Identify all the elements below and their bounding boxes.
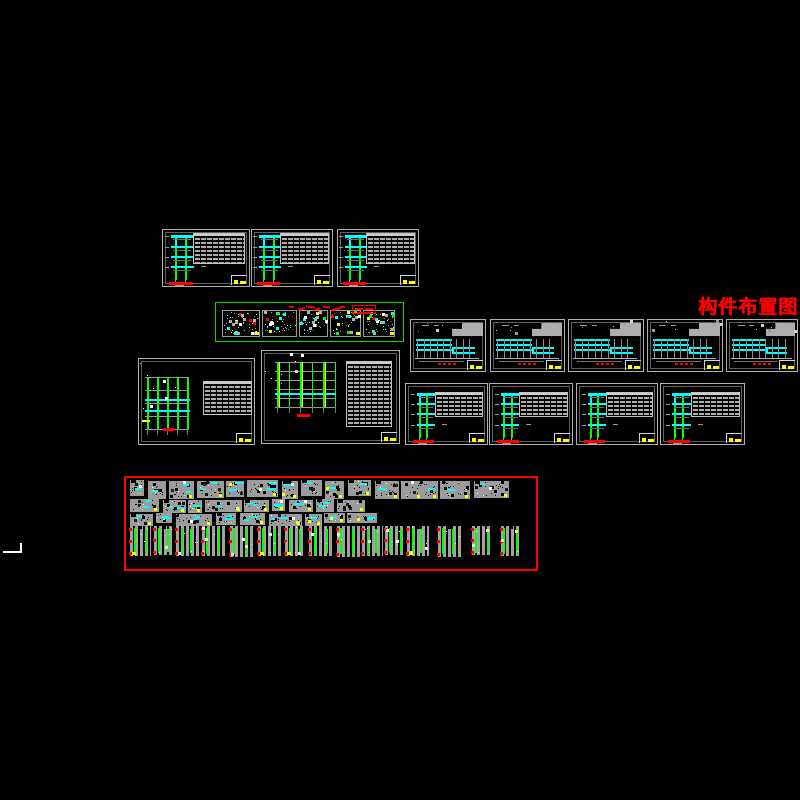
- roof-step-region: [610, 323, 641, 337]
- annotation-specks: [491, 320, 492, 321]
- column-grid-line: [497, 339, 498, 359]
- beam-grid-line: [732, 349, 766, 351]
- column-detail-strip: [154, 526, 174, 555]
- sheet-title-block: [554, 433, 570, 443]
- title-block-stamp: [472, 438, 476, 442]
- yellow-stamp: [366, 492, 369, 495]
- beam-shadow-line: [347, 270, 364, 271]
- frame-elevation-sheet-top-1: [162, 229, 250, 287]
- annotation-dash: [580, 325, 587, 326]
- beam-highlight-dash: [447, 489, 455, 491]
- title-block-stamp: [476, 366, 482, 369]
- rebar-line-green: [352, 529, 354, 554]
- red-script-stroke: [289, 306, 294, 308]
- strip-bright-marks: [407, 526, 408, 527]
- column-grid-line: [733, 339, 734, 359]
- column-line: [359, 235, 361, 280]
- panel-bright-marks: [205, 500, 206, 501]
- dimension-tick: [666, 404, 670, 405]
- column-grid-line: [456, 339, 457, 359]
- yellow-grid-line: [302, 362, 303, 407]
- fabrication-detail-panel: [301, 480, 322, 496]
- beam-shadow-line: [419, 428, 434, 429]
- column-detail-strip: [202, 526, 226, 556]
- rebar-line-green: [452, 529, 454, 554]
- dimension-tick: [165, 236, 169, 237]
- rebar-line-green: [181, 528, 183, 554]
- fabrication-detail-panel: [130, 514, 153, 526]
- floor-beam-line: [501, 403, 519, 405]
- sheet-title-block: [231, 275, 247, 285]
- annotation-specks: [727, 320, 728, 321]
- column-grid-line: [601, 339, 602, 359]
- strip-bright-marks: [362, 526, 363, 527]
- grid-tick: [157, 429, 158, 435]
- floor-beam-line: [171, 246, 194, 248]
- column-grid-line: [759, 339, 760, 359]
- title-block-stamp: [557, 438, 561, 442]
- yellow-stamp: [356, 332, 360, 335]
- panel-bright-marks: [130, 499, 131, 500]
- beam-highlight-dash: [146, 500, 150, 502]
- column-grid-line: [530, 339, 531, 359]
- ground-line: [577, 361, 623, 362]
- panel-notch: [349, 480, 354, 483]
- strip-bright-marks: [285, 526, 286, 527]
- beam-shadow-line: [590, 397, 604, 398]
- column-line: [682, 393, 684, 438]
- fabrication-detail-panel: [282, 481, 298, 499]
- annotation-dash: [418, 443, 427, 444]
- stepped-elevation-sheet-1: [410, 319, 486, 372]
- sheet-title-block: [546, 360, 562, 370]
- ground-line: [734, 361, 777, 362]
- yellow-stamp: [293, 495, 296, 498]
- floor-beam-line: [345, 246, 366, 248]
- beam-highlight-dash: [135, 515, 142, 517]
- rebar-schedule-table: [435, 392, 483, 417]
- panel-notch: [245, 500, 250, 503]
- column-grid-line: [765, 339, 766, 359]
- column-grid-line: [661, 339, 662, 359]
- rebar-line-green: [167, 529, 169, 552]
- beam-highlight-dash: [200, 488, 206, 490]
- fabrication-detail-panel: [316, 499, 334, 512]
- drawing-caption-red: [518, 363, 538, 366]
- beam-grid-line: [653, 339, 689, 341]
- beam-shadow-line: [261, 239, 278, 240]
- grid-tick: [323, 407, 324, 413]
- beam-shadow-line: [674, 397, 689, 398]
- annotation-dash: [502, 325, 509, 326]
- beam-grid-line: [496, 349, 531, 351]
- fabrication-detail-panel: [269, 514, 302, 526]
- yellow-stamp: [260, 521, 263, 524]
- dimension-tick: [253, 257, 257, 258]
- beam-shadow-line: [674, 428, 689, 429]
- beam-highlight-dash: [309, 517, 317, 519]
- dimension-tick: [339, 267, 343, 268]
- sheet-title-block: [625, 360, 641, 370]
- beam-grid-step: [610, 347, 612, 352]
- red-script-stroke: [323, 305, 330, 308]
- floor-beam-line: [672, 413, 691, 415]
- yellow-stamp: [340, 519, 343, 522]
- column-grid-line: [654, 339, 655, 359]
- column-detail-strip: [230, 526, 255, 557]
- detail-panel: [363, 310, 395, 337]
- rebar-schedule-table: [691, 392, 740, 417]
- yellow-stamp: [255, 332, 259, 335]
- yellow-stamp: [317, 522, 320, 525]
- grid-horizontal: [275, 371, 335, 372]
- rebar-line-green: [218, 529, 220, 553]
- beam-highlight-dash: [244, 519, 249, 521]
- yellow-grid-line: [279, 362, 280, 407]
- fabrication-detail-panel: [347, 513, 377, 523]
- beam-highlight-dash: [269, 482, 277, 484]
- title-block-stamp: [470, 365, 474, 369]
- red-boxed-label: [352, 305, 376, 314]
- sheet-title-block: [704, 360, 720, 370]
- title-block-stamp: [563, 439, 569, 442]
- floor-beam-line: [417, 413, 435, 415]
- panel-notch: [302, 480, 307, 483]
- beam-grid-line: [653, 349, 689, 351]
- beam-shadow-line: [173, 270, 191, 271]
- column-line: [185, 235, 187, 280]
- beam-grid-line: [732, 339, 766, 341]
- strip-bright-marks: [438, 526, 439, 527]
- column-grid-line: [674, 339, 675, 359]
- floor-beam-line: [417, 403, 435, 405]
- rebar-line-green: [400, 529, 402, 552]
- column-detail-strip: [385, 526, 405, 555]
- beam-highlight-dash: [271, 518, 275, 520]
- drawing-caption-red: [675, 363, 695, 366]
- detail-panel: [299, 310, 328, 337]
- beam-grid-line: [574, 344, 610, 346]
- sheet-title-block: [400, 275, 416, 285]
- dimension-tick: [698, 424, 703, 425]
- rebar-line-green: [412, 528, 414, 554]
- fabrication-detail-panel: [272, 499, 285, 511]
- panel-bright-marks: [197, 481, 198, 482]
- beam-shadow-line: [347, 250, 364, 251]
- dimension-tick: [495, 425, 499, 426]
- beam-shadow-line: [173, 250, 191, 251]
- annotation-dash: [434, 325, 439, 326]
- rebar-line-green: [340, 528, 342, 554]
- panel-bright-marks: [156, 513, 157, 514]
- layout-drawings-title: 构件布置图: [698, 292, 798, 319]
- detail-panel: [330, 310, 361, 337]
- floor-beam-line: [259, 266, 280, 268]
- fabrication-detail-panel: [305, 514, 322, 526]
- column-grid-line: [437, 339, 438, 359]
- yellow-stamp: [273, 493, 276, 496]
- beam-shadow-line: [503, 417, 518, 418]
- grid-tick: [289, 407, 290, 413]
- panel-bright-marks: [176, 514, 177, 515]
- detail-specks: [331, 311, 332, 312]
- stepped-elevation-sheet-3: [568, 319, 644, 372]
- roof-step-region: [532, 323, 563, 337]
- grid-tick: [177, 429, 178, 435]
- beam-highlight-dash: [323, 502, 329, 504]
- fabrication-detail-panel: [325, 481, 344, 499]
- title-block-stamp: [735, 439, 741, 442]
- dimension-tick: [582, 425, 586, 426]
- roof-step-region: [766, 323, 796, 337]
- grid-horizontal: [275, 407, 335, 408]
- column-detail-strip: [176, 526, 200, 556]
- panel-bright-marks: [226, 481, 227, 482]
- dimension-tick: [253, 236, 257, 237]
- column-grid-line: [582, 339, 583, 359]
- rebar-line-green: [326, 529, 328, 553]
- grid-horizontal: [275, 398, 335, 399]
- column-grid-line: [752, 339, 753, 359]
- column-grid-line: [785, 339, 786, 359]
- strip-bright-marks: [309, 526, 310, 527]
- grid-tick: [187, 429, 188, 435]
- fabrication-detail-panel: [188, 500, 202, 513]
- annotation-dash: [514, 325, 519, 326]
- sheet-title-block: [381, 432, 397, 442]
- floor-beam-line: [345, 256, 366, 258]
- column-grid-line: [772, 339, 773, 359]
- beam-shadow-line: [173, 239, 191, 240]
- rebar-line-green: [314, 528, 316, 554]
- detail-specks: [300, 311, 301, 312]
- beam-shadow-line: [419, 407, 434, 408]
- dimension-tick: [666, 425, 670, 426]
- rebar-line-green: [262, 528, 264, 554]
- column-grid-line: [608, 339, 609, 359]
- beam-highlight-dash: [253, 504, 259, 506]
- drawing-caption-red: [438, 363, 458, 366]
- beam-highlight-dash: [235, 482, 244, 484]
- detail-specks: [263, 311, 264, 312]
- column-grid-line: [693, 339, 694, 359]
- beam-shadow-line: [503, 397, 518, 398]
- rebar-line-green: [503, 528, 505, 554]
- sheet-title-block: [639, 433, 655, 443]
- beam-highlight-dash: [428, 488, 435, 490]
- red-label-dash: [365, 308, 373, 310]
- yellow-stamp: [504, 494, 507, 497]
- column-grid-line: [621, 339, 622, 359]
- beam-highlight-dash: [218, 505, 223, 507]
- dimension-tick: [411, 404, 415, 405]
- title-block-stamp: [245, 439, 251, 442]
- stepped-elevation-sheet-2: [490, 319, 565, 372]
- title-block-stamp: [403, 280, 407, 284]
- beam-grid-line: [574, 349, 610, 351]
- title-block-stamp: [707, 365, 711, 369]
- annotation-specks: [569, 320, 570, 321]
- foundation-line: [297, 414, 310, 417]
- annotation-dash: [673, 443, 682, 444]
- fabrication-detail-panel: [130, 499, 159, 512]
- yellow-stamp: [197, 509, 200, 512]
- dimension-tick: [582, 404, 586, 405]
- annotation-dash: [349, 285, 358, 286]
- title-block-stamp: [478, 439, 484, 442]
- column-grid-line: [739, 339, 740, 359]
- fabrication-detail-panel: [324, 513, 345, 523]
- column-grid-line: [543, 339, 544, 359]
- panel-bright-marks: [169, 481, 170, 482]
- yellow-stamp: [308, 508, 311, 511]
- floor-beam-line: [501, 413, 519, 415]
- frame-elevation-sheet-mid-1: [405, 383, 488, 445]
- rebar-line-green: [158, 528, 160, 553]
- column-line: [597, 393, 599, 438]
- beam-highlight-dash: [281, 517, 288, 519]
- column-grid-line: [523, 339, 524, 359]
- roof-step-region: [689, 323, 720, 337]
- title-block-stamp: [239, 438, 243, 442]
- beam-highlight-dash: [286, 484, 292, 486]
- yellow-stamp: [132, 552, 136, 555]
- rebar-line-green: [274, 529, 276, 553]
- dimension-tick: [666, 394, 670, 395]
- title-block-stamp: [409, 281, 415, 284]
- grid-vertical: [157, 377, 159, 429]
- beam-highlight-dash: [480, 483, 485, 485]
- beam-highlight-dash: [294, 503, 299, 505]
- fabrication-detail-panel: [148, 481, 166, 499]
- dimension-tick: [442, 424, 447, 425]
- dimension-tick: [495, 414, 499, 415]
- dimension-tick: [165, 257, 169, 258]
- stray-line-tick: [20, 543, 22, 553]
- column-detail-strip: [407, 526, 429, 556]
- strip-bright-marks: [130, 526, 131, 527]
- panel-notch: [131, 514, 136, 517]
- column-line: [273, 235, 275, 280]
- dimension-tick: [411, 425, 415, 426]
- title-block-stamp: [634, 366, 640, 369]
- beam-highlight-dash: [318, 505, 326, 507]
- panel-bright-marks: [325, 481, 326, 482]
- title-block-stamp: [642, 438, 646, 442]
- rebar-schedule-table: [203, 381, 252, 415]
- dimension-tick: [526, 424, 531, 425]
- fabrication-detail-panel: [176, 514, 212, 526]
- rebar-line-green: [299, 529, 301, 553]
- panel-bright-marks: [289, 500, 290, 501]
- dimension-tick: [495, 394, 499, 395]
- column-detail-strip: [309, 526, 334, 556]
- yellow-stamp: [280, 507, 283, 510]
- beam-grid-line: [416, 344, 452, 346]
- title-block-stamp: [384, 437, 388, 441]
- fabrication-detail-panel: [474, 481, 509, 498]
- beam-grid-step: [532, 347, 534, 352]
- title-block-stamp: [713, 366, 719, 369]
- yellow-stamp: [433, 495, 436, 498]
- dimension-tick: [411, 414, 415, 415]
- frame-elevation-sheet-mid-3: [576, 383, 658, 445]
- stray-line-mark: [3, 543, 25, 554]
- column-detail-strip: [472, 526, 492, 555]
- beam-highlight-dash: [360, 483, 367, 485]
- floor-beam-line: [171, 266, 194, 268]
- panel-notch: [283, 481, 288, 484]
- annotation-specks: [648, 320, 649, 321]
- strip-bright-marks: [202, 526, 203, 527]
- red-label-dash: [355, 308, 363, 310]
- fabrication-detail-panel: [197, 481, 224, 498]
- ground-line: [656, 361, 702, 362]
- rebar-line-green: [420, 529, 422, 553]
- fabrication-detail-panel: [337, 500, 365, 512]
- annotation-dash: [175, 285, 184, 286]
- title-block-stamp: [555, 366, 561, 369]
- rebar-line-green: [233, 528, 235, 554]
- annotation-dash: [263, 285, 272, 286]
- column-grid-line: [778, 339, 779, 359]
- fabrication-detail-panel: [401, 481, 438, 499]
- floor-beam-line: [672, 424, 691, 426]
- title-block-stamp: [729, 438, 733, 442]
- beam-highlight-dash: [169, 506, 173, 508]
- grid-vertical: [187, 377, 189, 429]
- node-dots: [262, 351, 263, 352]
- fabrication-detail-panel: [163, 500, 186, 513]
- sheet-title-block: [726, 433, 742, 443]
- grid-vertical: [167, 377, 169, 429]
- rebar-line-green: [375, 529, 377, 553]
- highlight-beam-line: [145, 410, 190, 412]
- detail-panel: [222, 310, 260, 337]
- yellow-stamp: [237, 508, 240, 511]
- grid-vertical: [177, 377, 179, 429]
- highlight-beam-line: [275, 393, 336, 395]
- floor-beam-line: [588, 413, 606, 415]
- sheet-title-block: [467, 360, 483, 370]
- beam-grid-line: [574, 339, 610, 341]
- column-grid-line: [687, 339, 688, 359]
- beam-highlight-dash: [225, 518, 233, 520]
- yellow-stamp: [207, 522, 210, 525]
- dimension-tick: [339, 236, 343, 237]
- dimension-tick: [339, 257, 343, 258]
- title-block-stamp: [782, 365, 786, 369]
- panel-notch: [475, 481, 480, 484]
- rebar-line-green: [389, 528, 391, 553]
- rebar-schedule-table: [606, 392, 654, 417]
- panel-bright-marks: [440, 481, 441, 482]
- fabrication-detail-panel: [247, 480, 278, 497]
- rebar-schedule-table: [193, 233, 245, 263]
- stepped-elevation-sheet-4: [647, 319, 723, 372]
- column-grid-line: [595, 339, 596, 359]
- ground-line: [499, 361, 544, 362]
- beam-shadow-line: [347, 239, 364, 240]
- title-block-stamp: [628, 365, 632, 369]
- panel-bright-marks: [401, 481, 402, 482]
- yellow-grid-line: [325, 362, 326, 407]
- dimension-tick: [165, 267, 169, 268]
- highlight-beam-line: [145, 399, 190, 401]
- column-grid-line: [549, 339, 550, 359]
- yellow-stamp: [189, 495, 192, 498]
- yellow-accent: [142, 420, 150, 422]
